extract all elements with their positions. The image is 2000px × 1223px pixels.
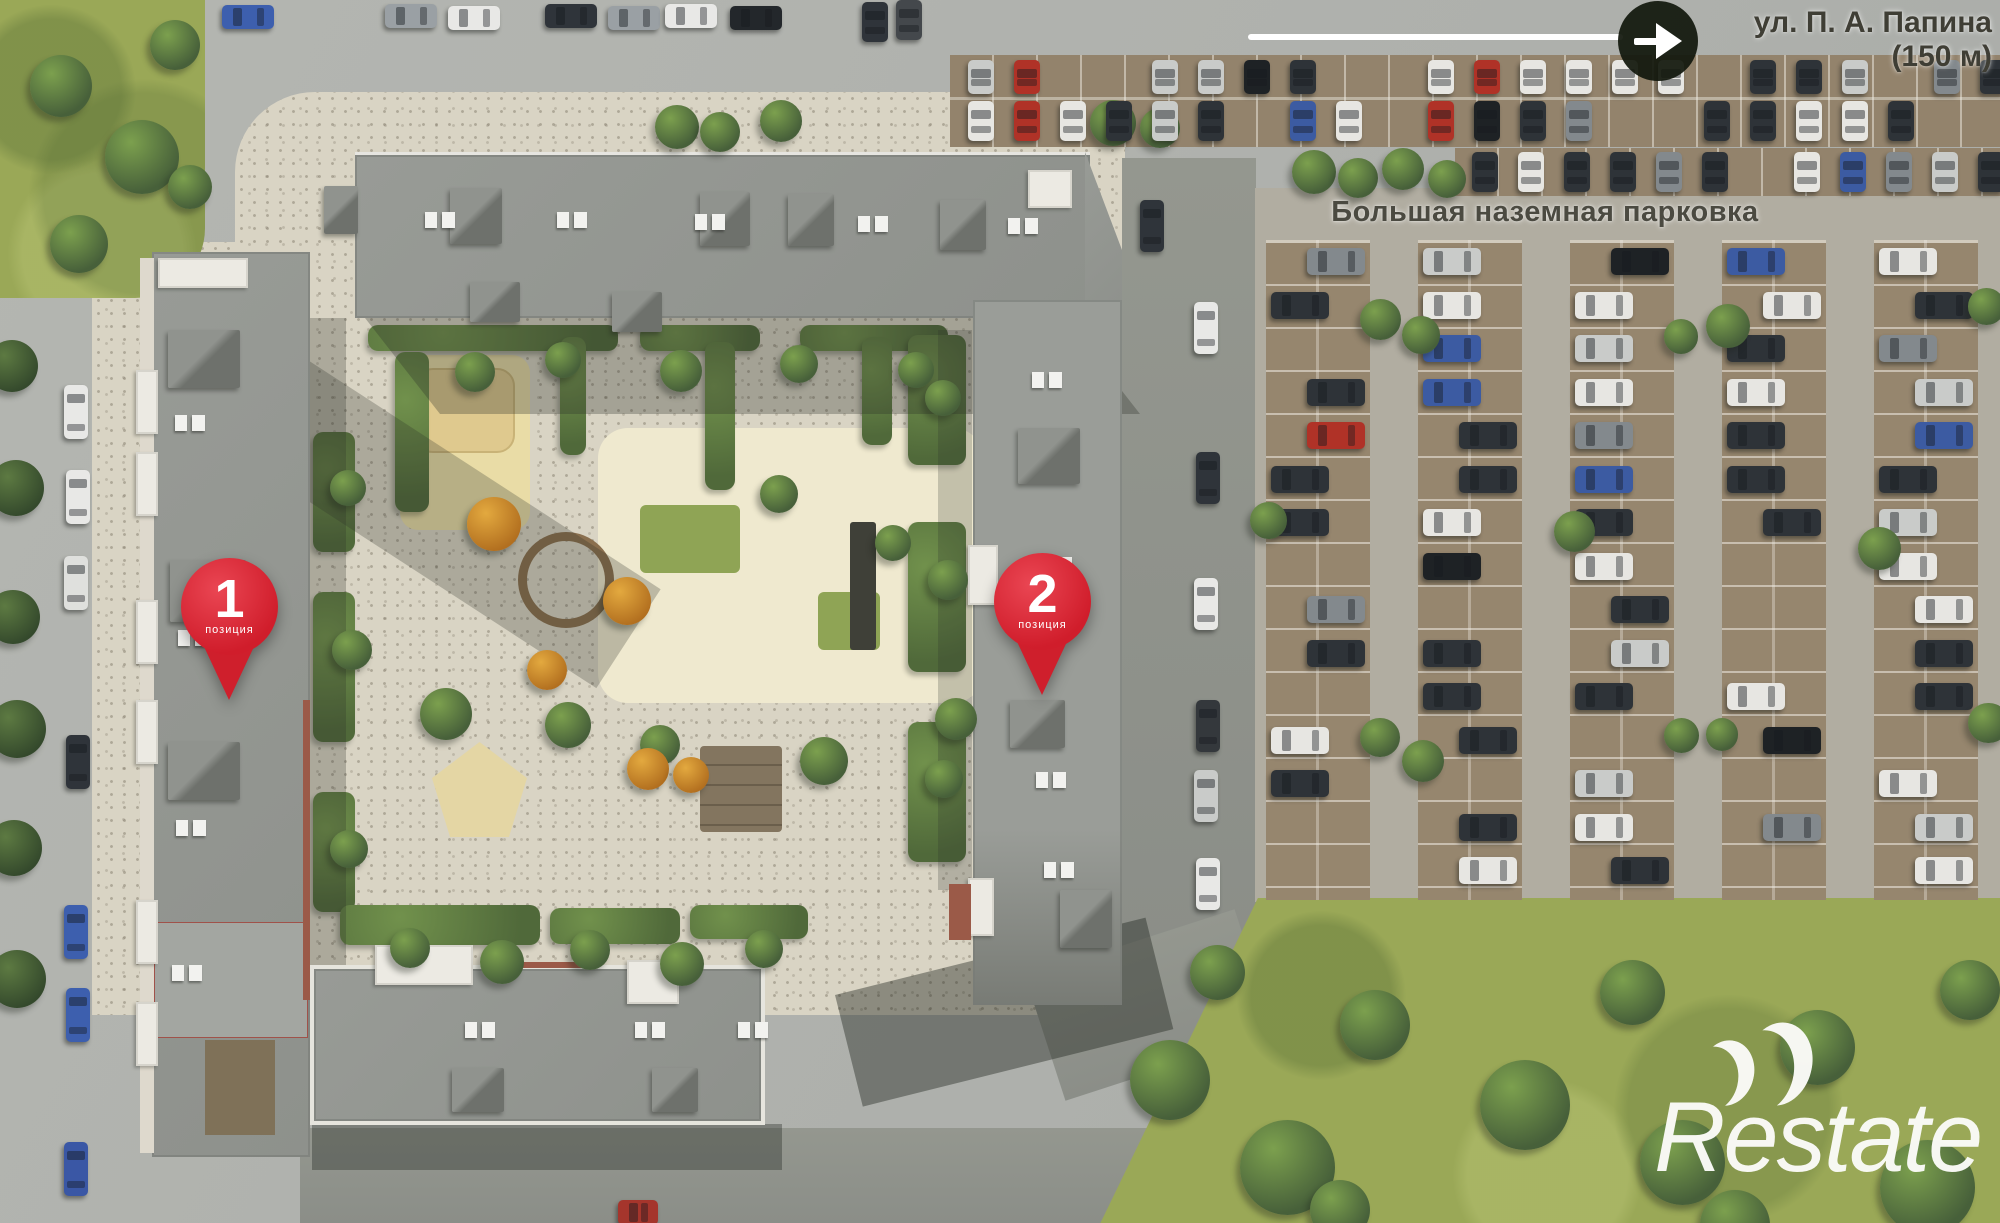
car: [1423, 509, 1481, 536]
car: [1060, 101, 1086, 141]
car: [1520, 60, 1546, 94]
street-distance: (150 м): [1690, 40, 1992, 74]
tree: [1360, 718, 1400, 758]
roof-penthouse: [324, 186, 358, 234]
car: [1763, 292, 1821, 319]
car: [1611, 248, 1669, 275]
car: [66, 470, 90, 524]
car: [64, 385, 88, 439]
tree: [168, 165, 212, 209]
car: [1978, 152, 2000, 192]
car: [862, 2, 888, 42]
car: [1244, 60, 1270, 94]
car: [1727, 422, 1785, 449]
tree: [1480, 1060, 1570, 1150]
tree: [928, 560, 968, 600]
tree: [0, 820, 42, 876]
car: [968, 60, 994, 94]
roof-penthouse: [1018, 428, 1080, 484]
car: [1763, 727, 1821, 754]
roof-parapet-box: [136, 700, 158, 764]
car: [1704, 101, 1730, 141]
tree: [700, 112, 740, 152]
car: [64, 1142, 88, 1196]
tree: [1968, 288, 2000, 325]
car: [1423, 683, 1481, 710]
car: [1575, 553, 1633, 580]
car: [1842, 101, 1868, 141]
tree: [745, 930, 783, 968]
tree: [935, 698, 977, 740]
roof-penthouse: [612, 292, 662, 332]
rooftop-ac-unit: [1036, 772, 1066, 788]
car: [1520, 101, 1546, 141]
car: [1879, 466, 1937, 493]
rooftop-ac-unit: [695, 214, 725, 230]
car: [1763, 814, 1821, 841]
car: [1727, 248, 1785, 275]
tree: [925, 760, 963, 798]
tree: [660, 350, 702, 392]
wood-deck: [700, 746, 782, 832]
tree: [925, 380, 961, 416]
car: [1307, 422, 1365, 449]
street-sign: ул. П. А. Папина (150 м): [1690, 6, 1992, 74]
car: [1290, 60, 1316, 94]
tree: [0, 590, 40, 644]
car: [1423, 248, 1481, 275]
car: [1566, 60, 1592, 94]
car: [1307, 248, 1365, 275]
car: [1140, 200, 1164, 252]
car: [1152, 60, 1178, 94]
facade-accent: [303, 700, 310, 1000]
parking-label: Большая наземная парковка: [1310, 196, 1780, 229]
car: [1459, 857, 1517, 884]
green-patch: [640, 505, 740, 573]
tree: [0, 700, 46, 758]
car: [1575, 683, 1633, 710]
tree: [780, 345, 818, 383]
roof-parapet-box: [136, 600, 158, 664]
car: [1575, 466, 1633, 493]
car: [1794, 152, 1820, 192]
car: [1307, 640, 1365, 667]
car: [1656, 152, 1682, 192]
car: [1888, 101, 1914, 141]
car: [1106, 101, 1132, 141]
car: [730, 6, 782, 30]
car: [1518, 152, 1544, 192]
rooftop-ac-unit: [465, 1022, 495, 1038]
street-name: ул. П. А. Папина: [1690, 6, 1992, 40]
car: [448, 6, 500, 30]
car: [1886, 152, 1912, 192]
car: [1564, 152, 1590, 192]
tree: [760, 100, 802, 142]
rooftop-ac-unit: [738, 1022, 768, 1038]
car: [1307, 596, 1365, 623]
car: [1915, 596, 1973, 623]
rooftop-ac-unit: [635, 1022, 665, 1038]
car: [1014, 60, 1040, 94]
pergola: [850, 522, 876, 650]
building-shadow: [312, 1124, 782, 1170]
car: [1474, 101, 1500, 141]
car: [1610, 152, 1636, 192]
tree: [332, 630, 372, 670]
autumn-tree: [673, 757, 709, 793]
car: [385, 4, 437, 28]
tree: [0, 340, 38, 392]
roof-penthouse: [452, 1068, 504, 1112]
roof-parapet-box: [968, 878, 994, 936]
position-pin-2[interactable]: 2 позиция: [993, 553, 1093, 709]
car: [1611, 857, 1669, 884]
car: [1575, 292, 1633, 319]
rooftop-ac-unit: [1008, 218, 1038, 234]
roof-parapet-box: [136, 1002, 158, 1066]
tree: [1428, 160, 1466, 198]
car: [64, 556, 88, 610]
car: [1879, 335, 1937, 362]
car: [1271, 770, 1329, 797]
car: [66, 735, 90, 789]
car: [1915, 640, 1973, 667]
car: [665, 4, 717, 28]
tree: [545, 702, 591, 748]
facade-accent: [949, 884, 971, 940]
car: [1152, 101, 1178, 141]
car: [1271, 292, 1329, 319]
car: [1423, 379, 1481, 406]
rooftop-ac-unit: [858, 216, 888, 232]
car: [1727, 466, 1785, 493]
car: [1575, 814, 1633, 841]
hedge: [340, 905, 540, 945]
tree: [1250, 502, 1287, 539]
car: [1566, 101, 1592, 141]
pin-number: 1: [180, 568, 279, 630]
car: [1611, 596, 1669, 623]
car: [1196, 452, 1220, 504]
tree: [0, 460, 44, 516]
tree: [330, 830, 368, 868]
site-plan-map: ул. П. А. Папина (150 м) Большая наземна…: [0, 0, 2000, 1223]
car: [1932, 152, 1958, 192]
car: [1459, 422, 1517, 449]
autumn-tree: [467, 497, 521, 551]
rooftop-ac-unit: [1044, 862, 1074, 878]
car: [1307, 379, 1365, 406]
car: [1271, 727, 1329, 754]
car: [1336, 101, 1362, 141]
east-road: [1122, 158, 1256, 970]
car: [222, 5, 274, 29]
pin-number: 2: [993, 563, 1092, 625]
car: [1459, 727, 1517, 754]
pin-caption: позиция: [993, 619, 1092, 631]
rooftop-ac-unit: [175, 415, 205, 431]
car: [1796, 101, 1822, 141]
rooftop-ac-unit: [425, 212, 455, 228]
roof-penthouse: [168, 742, 240, 800]
tree: [875, 525, 911, 561]
car: [1727, 379, 1785, 406]
roof-penthouse: [168, 330, 240, 388]
pin-caption: позиция: [180, 624, 279, 636]
tree: [455, 352, 495, 392]
car: [1575, 379, 1633, 406]
building-1-brown-roof: [205, 1040, 275, 1135]
autumn-tree: [627, 748, 669, 790]
car: [1915, 857, 1973, 884]
car: [64, 905, 88, 959]
autumn-tree: [527, 650, 567, 690]
tree: [1858, 527, 1901, 570]
tree: [30, 55, 92, 117]
car: [1915, 422, 1973, 449]
car: [1014, 101, 1040, 141]
roof-penthouse: [652, 1068, 698, 1112]
tree: [50, 215, 108, 273]
tree: [1130, 1040, 1210, 1120]
tree: [1402, 316, 1440, 354]
tree: [760, 475, 798, 513]
car: [1879, 248, 1937, 275]
tree: [1190, 945, 1245, 1000]
car: [1474, 60, 1500, 94]
roof-parapet-box: [136, 452, 158, 516]
roof-penthouse: [788, 194, 834, 246]
tree: [570, 930, 610, 970]
roof-parapet-box: [136, 370, 158, 434]
car: [896, 0, 922, 40]
tree: [1940, 960, 2000, 1020]
tree: [1600, 960, 1665, 1025]
car: [1915, 292, 1973, 319]
car: [618, 1200, 658, 1223]
tree: [390, 928, 430, 968]
car: [1423, 292, 1481, 319]
car: [1575, 335, 1633, 362]
tree: [1382, 148, 1424, 190]
tree: [1338, 158, 1378, 198]
hedge: [690, 905, 808, 939]
tree: [330, 470, 366, 506]
car: [1271, 466, 1329, 493]
tree: [0, 950, 46, 1008]
car: [1879, 770, 1937, 797]
tree: [660, 942, 704, 986]
tree: [1360, 299, 1401, 340]
tree: [480, 940, 524, 984]
car: [1915, 814, 1973, 841]
tree: [898, 352, 934, 388]
car: [1423, 553, 1481, 580]
tree: [800, 737, 848, 785]
tree: [150, 20, 200, 70]
car: [1196, 858, 1220, 910]
tree: [655, 105, 699, 149]
roof-penthouse: [450, 188, 502, 244]
roof-penthouse: [940, 200, 986, 250]
car: [1198, 101, 1224, 141]
car: [1575, 422, 1633, 449]
street-arrow-icon: [1618, 1, 1698, 81]
restate-watermark: Restate: [1630, 1052, 2000, 1222]
tree: [1340, 990, 1410, 1060]
autumn-tree: [603, 577, 651, 625]
car: [66, 988, 90, 1042]
hedge: [550, 908, 680, 944]
street-direction-line: [1248, 34, 1623, 40]
car: [1459, 814, 1517, 841]
car: [1459, 466, 1517, 493]
roof-parapet-box: [136, 900, 158, 964]
tree: [1706, 304, 1750, 348]
car: [1196, 700, 1220, 752]
tree: [1664, 718, 1699, 753]
position-pin-1[interactable]: 1 позиция: [180, 558, 280, 714]
car: [1575, 770, 1633, 797]
car: [1915, 683, 1973, 710]
car: [1611, 640, 1669, 667]
car: [545, 4, 597, 28]
watermark-text: Restate: [1654, 1080, 1981, 1194]
car: [1194, 302, 1218, 354]
car: [1915, 379, 1973, 406]
car: [1428, 101, 1454, 141]
car: [1727, 683, 1785, 710]
car: [608, 6, 660, 30]
rooftop-ac-unit: [1032, 372, 1062, 388]
tree: [1664, 319, 1698, 353]
car: [1472, 152, 1498, 192]
roof-parapet-box: [1028, 170, 1072, 208]
roof-penthouse: [1060, 890, 1112, 948]
parking-column: [1266, 240, 1370, 900]
rooftop-ac-unit: [557, 212, 587, 228]
tree: [1292, 150, 1336, 194]
car: [1198, 60, 1224, 94]
roof-penthouse: [470, 282, 520, 322]
car: [1840, 152, 1866, 192]
rooftop-ac-unit: [172, 965, 202, 981]
car: [1290, 101, 1316, 141]
tree: [420, 688, 472, 740]
car: [1750, 101, 1776, 141]
car: [968, 101, 994, 141]
car: [1428, 60, 1454, 94]
car: [1763, 509, 1821, 536]
tree: [545, 342, 581, 378]
car: [1702, 152, 1728, 192]
car: [1423, 640, 1481, 667]
rooftop-ac-unit: [176, 820, 206, 836]
car: [1194, 770, 1218, 822]
roof-parapet-box: [158, 258, 248, 288]
car: [1194, 578, 1218, 630]
